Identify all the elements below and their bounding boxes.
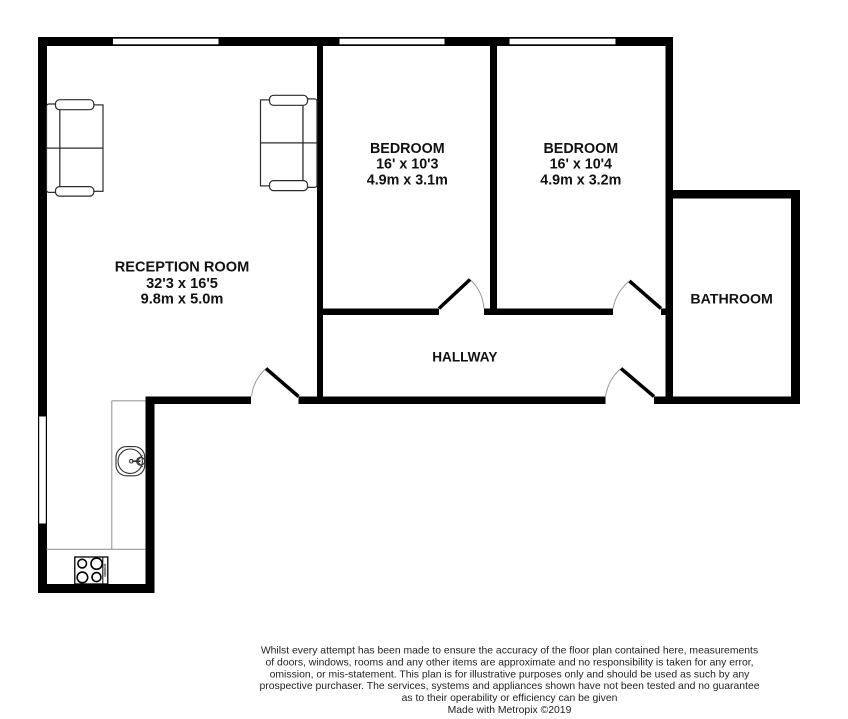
svg-text:prospective purchaser. The ser: prospective purchaser. The services, sys… <box>259 681 759 692</box>
svg-text:32'3 x 16'5: 32'3 x 16'5 <box>146 276 218 292</box>
svg-text:Made with Metropix ©2019: Made with Metropix ©2019 <box>448 705 572 716</box>
svg-text:RECEPTION ROOM: RECEPTION ROOM <box>115 260 250 276</box>
svg-text:omission, or mis-statement. Th: omission, or mis-statement. This plan is… <box>270 669 751 680</box>
svg-text:4.9m x 3.1m: 4.9m x 3.1m <box>367 172 448 188</box>
svg-text:4.9m x 3.2m: 4.9m x 3.2m <box>540 172 621 188</box>
svg-text:Whilst every attempt has been: Whilst every attempt has been made to en… <box>261 646 758 657</box>
svg-text:of doors, windows, rooms and a: of doors, windows, rooms and any other i… <box>265 657 753 668</box>
svg-text:BEDROOM: BEDROOM <box>543 141 618 157</box>
svg-text:16' x 10'4: 16' x 10'4 <box>550 157 612 173</box>
svg-text:as to their operability or eff: as to their operability or efficiency ca… <box>402 693 618 704</box>
svg-text:HALLWAY: HALLWAY <box>432 349 497 364</box>
svg-text:BATHROOM: BATHROOM <box>690 292 773 308</box>
svg-text:BEDROOM: BEDROOM <box>370 141 445 157</box>
svg-text:16' x 10'3: 16' x 10'3 <box>376 157 438 173</box>
svg-text:9.8m x 5.0m: 9.8m x 5.0m <box>141 291 224 307</box>
